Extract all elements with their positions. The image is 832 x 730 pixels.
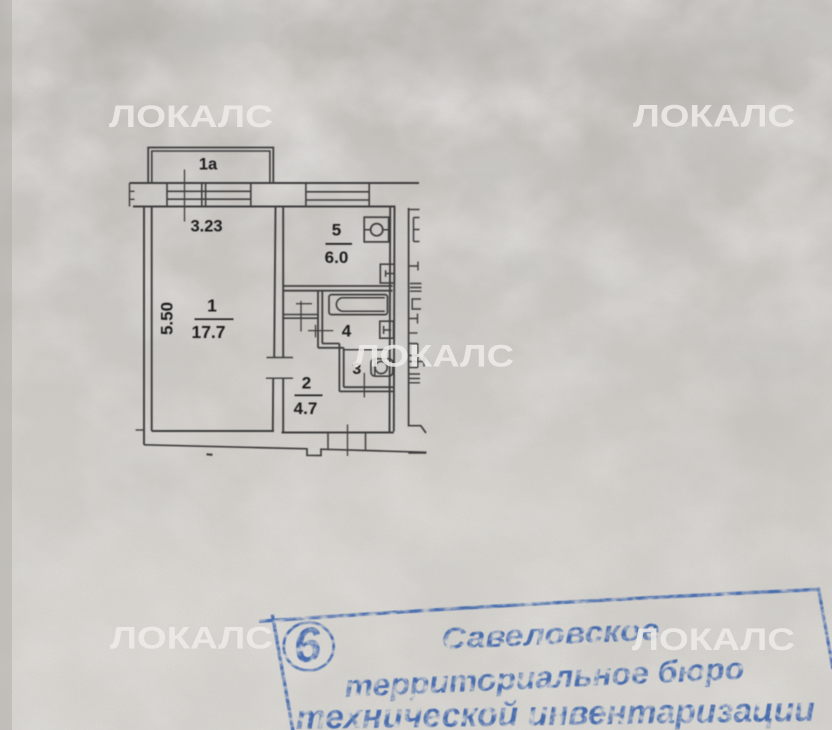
svg-text:6: 6 [291,618,324,674]
svg-text:17.7: 17.7 [191,322,225,342]
svg-text:3.23: 3.23 [190,218,222,236]
svg-text:ЛОКАЛС: ЛОКАЛС [632,621,795,657]
svg-text:4.7: 4.7 [294,399,318,418]
svg-text:2: 2 [302,373,311,392]
svg-text:1а: 1а [199,156,218,174]
svg-text:ЛОКАЛС: ЛОКАЛС [110,620,273,656]
svg-text:1: 1 [207,296,217,316]
svg-text:5: 5 [332,221,341,240]
svg-text:4: 4 [342,321,352,340]
svg-text:ЛОКАЛС: ЛОКАЛС [353,338,514,374]
svg-text:ЛОКАЛС: ЛОКАЛС [109,98,273,134]
svg-text:5.50: 5.50 [158,302,177,335]
svg-text:6.0: 6.0 [325,248,349,267]
svg-text:ЛОКАЛС: ЛОКАЛС [633,98,795,134]
